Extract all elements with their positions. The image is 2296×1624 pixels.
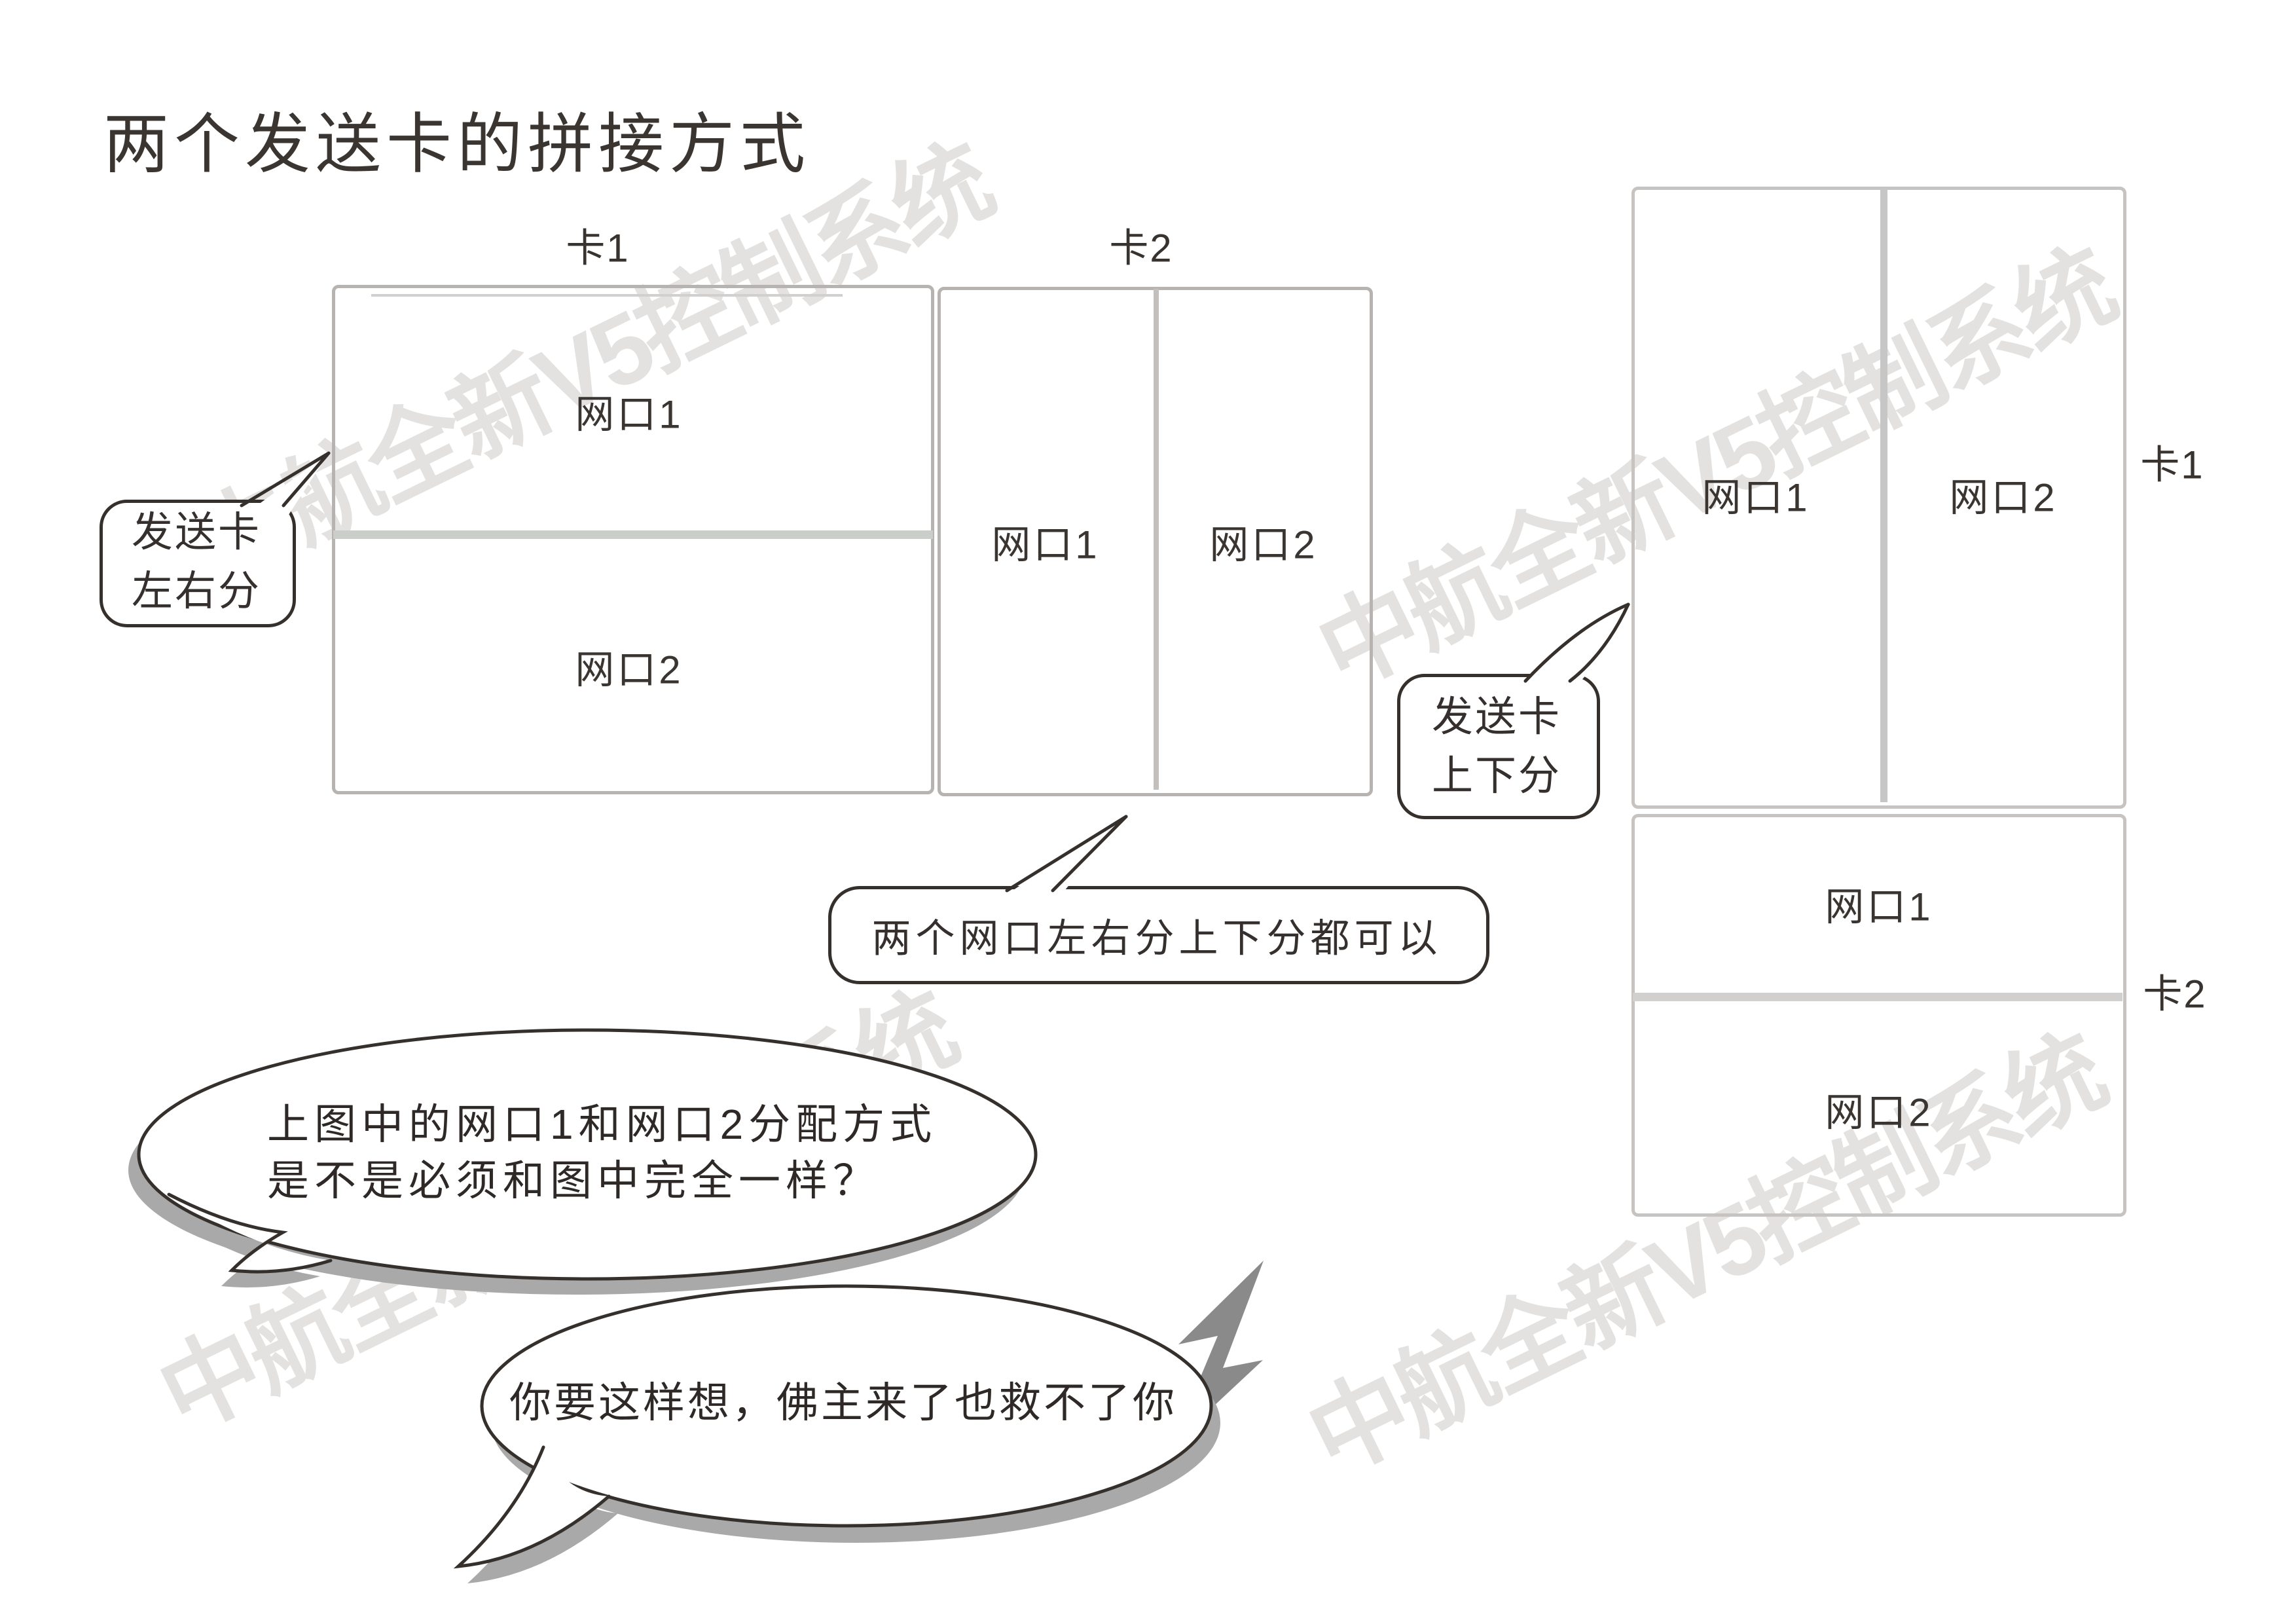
left-card-box (332, 285, 934, 794)
right-bottom-card-port2-label: 网口2 (1825, 1081, 1933, 1138)
right-bottom-card-box (1631, 814, 2126, 1217)
right-top-card-label: 卡1 (2140, 434, 2204, 490)
page-title: 两个发送卡的拼接方式 (103, 91, 811, 186)
lightning-bolt-icon (1172, 1261, 1264, 1445)
right-bottom-card-label: 卡2 (2143, 963, 2206, 1020)
left-card-sketch-line (371, 294, 843, 297)
note-callout-text: 两个网口左右分上下分都可以 (872, 907, 1442, 964)
middle-card-label: 卡2 (1109, 217, 1173, 274)
middle-card-divider (1154, 289, 1159, 790)
left-split-line1: 发送卡 (132, 503, 261, 562)
left-card-label: 卡1 (566, 217, 629, 274)
left-split-line2: 左右分 (132, 562, 261, 621)
right-bottom-card-port1-label: 网口1 (1825, 876, 1933, 932)
top-bottom-split-line1: 发送卡 (1432, 688, 1561, 747)
right-top-card-port2-label: 网口2 (1949, 466, 2057, 523)
question-bubble-line1: 上图中的网口1和网口2分配方式 (267, 1091, 937, 1151)
right-top-card-port1-label: 网口1 (1702, 466, 1810, 523)
answer-bubble-tail (458, 1447, 609, 1566)
middle-card-port2-label: 网口2 (1209, 513, 1317, 570)
answer-bubble-text: 你要这样想，佛主来了也救不了你 (509, 1369, 1177, 1430)
question-bubble-line2: 是不是必须和图中完全一样？ (267, 1147, 880, 1208)
diagram-canvas: 中航全新V5控制系统 中航全新V5控制系统 中航全新V5控制系统 中航全新V5控… (0, 0, 2296, 1624)
top-bottom-split-line2: 上下分 (1432, 747, 1561, 805)
left-card-divider (333, 530, 933, 539)
top-bottom-split-callout-text: 发送卡 上下分 (1432, 688, 1561, 805)
left-card-port1-label: 网口1 (575, 383, 683, 440)
left-card-port2-label: 网口2 (575, 638, 683, 695)
middle-card-port1-label: 网口1 (991, 513, 1099, 570)
left-split-callout-text: 发送卡 左右分 (132, 503, 261, 621)
right-top-card-divider (1880, 189, 1887, 802)
right-bottom-card-divider (1633, 993, 2123, 1001)
